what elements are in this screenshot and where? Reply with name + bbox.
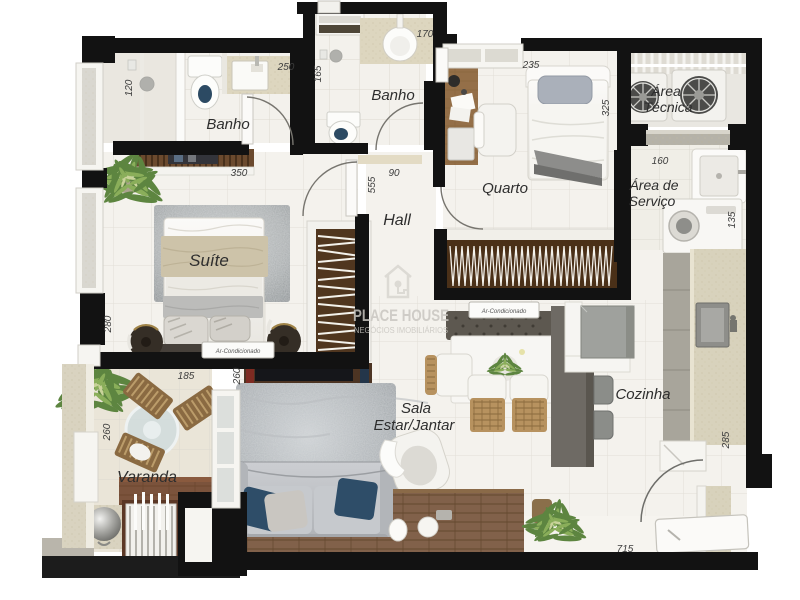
svg-text:Varanda: Varanda xyxy=(117,469,177,486)
svg-text:170: 170 xyxy=(417,29,434,40)
svg-text:250: 250 xyxy=(277,62,295,73)
svg-text:Quarto: Quarto xyxy=(482,180,528,197)
svg-text:Ar-Condicionado: Ar-Condicionado xyxy=(215,349,261,355)
svg-text:Área: Área xyxy=(650,83,681,99)
svg-text:Banho: Banho xyxy=(371,87,414,104)
svg-text:PLACE HOUSE: PLACE HOUSE xyxy=(353,306,449,325)
svg-text:185: 185 xyxy=(178,371,195,382)
svg-text:325: 325 xyxy=(601,99,612,116)
svg-text:160: 160 xyxy=(652,156,669,167)
svg-text:Serviço: Serviço xyxy=(629,193,676,209)
svg-text:260: 260 xyxy=(102,423,113,441)
svg-text:135: 135 xyxy=(727,211,738,228)
svg-text:235: 235 xyxy=(522,60,540,71)
svg-text:Ar-Condicionado: Ar-Condicionado xyxy=(481,309,527,315)
svg-text:Área de: Área de xyxy=(628,177,678,193)
svg-text:Hall: Hall xyxy=(383,212,411,229)
svg-text:Estar/Jantar: Estar/Jantar xyxy=(374,417,456,434)
svg-text:Sala: Sala xyxy=(401,400,431,417)
svg-text:90: 90 xyxy=(388,168,400,179)
svg-text:Cozinha: Cozinha xyxy=(615,386,670,403)
svg-text:285: 285 xyxy=(721,431,732,449)
svg-text:120: 120 xyxy=(124,79,135,96)
svg-text:Técnica: Técnica xyxy=(643,99,692,115)
svg-text:NEGÓCIOS IMOBILIÁRIOS: NEGÓCIOS IMOBILIÁRIOS xyxy=(354,326,448,335)
svg-text:715: 715 xyxy=(617,544,634,555)
svg-text:350: 350 xyxy=(231,168,248,179)
svg-text:Banho: Banho xyxy=(206,116,249,133)
svg-text:555: 555 xyxy=(367,176,378,193)
svg-text:165: 165 xyxy=(313,65,324,82)
svg-text:280: 280 xyxy=(103,315,114,333)
svg-text:260: 260 xyxy=(232,367,243,385)
svg-text:Suíte: Suíte xyxy=(189,251,229,270)
